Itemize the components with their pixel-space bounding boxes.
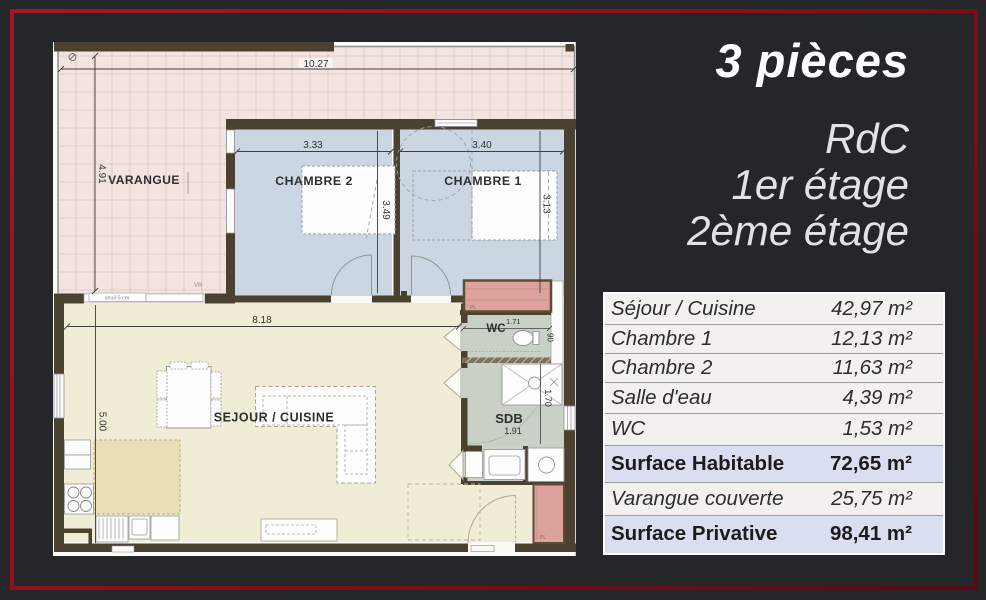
svg-text:VARANGUE: VARANGUE bbox=[108, 173, 180, 187]
svg-text:8.18: 8.18 bbox=[252, 315, 272, 326]
svg-text:WC: WC bbox=[486, 323, 505, 335]
svg-text:3.49: 3.49 bbox=[380, 200, 391, 220]
svg-text:SDB: SDB bbox=[495, 411, 522, 426]
svg-text:PL: PL bbox=[540, 535, 546, 541]
svg-text:CHAMBRE 2: CHAMBRE 2 bbox=[275, 174, 353, 188]
svg-text:5.00: 5.00 bbox=[97, 412, 108, 432]
svg-text:10.27: 10.27 bbox=[303, 59, 328, 70]
svg-text:1.70: 1.70 bbox=[543, 389, 553, 407]
svg-text:PL: PL bbox=[470, 305, 476, 311]
svg-text:SEJOUR / CUISINE: SEJOUR / CUISINE bbox=[214, 411, 335, 425]
svg-text:3.40: 3.40 bbox=[472, 140, 492, 151]
svg-text:4.91: 4.91 bbox=[96, 164, 107, 184]
svg-text:90: 90 bbox=[546, 333, 555, 342]
svg-text:3.13: 3.13 bbox=[541, 194, 552, 214]
svg-text:CHAMBRE 1: CHAMBRE 1 bbox=[444, 174, 522, 188]
svg-text:3.33: 3.33 bbox=[303, 140, 323, 151]
svg-text:1.71: 1.71 bbox=[506, 317, 521, 326]
svg-text:1.91: 1.91 bbox=[504, 426, 522, 436]
svg-text:seuil 5 cm: seuil 5 cm bbox=[105, 296, 130, 302]
svg-text:VR: VR bbox=[194, 283, 203, 289]
